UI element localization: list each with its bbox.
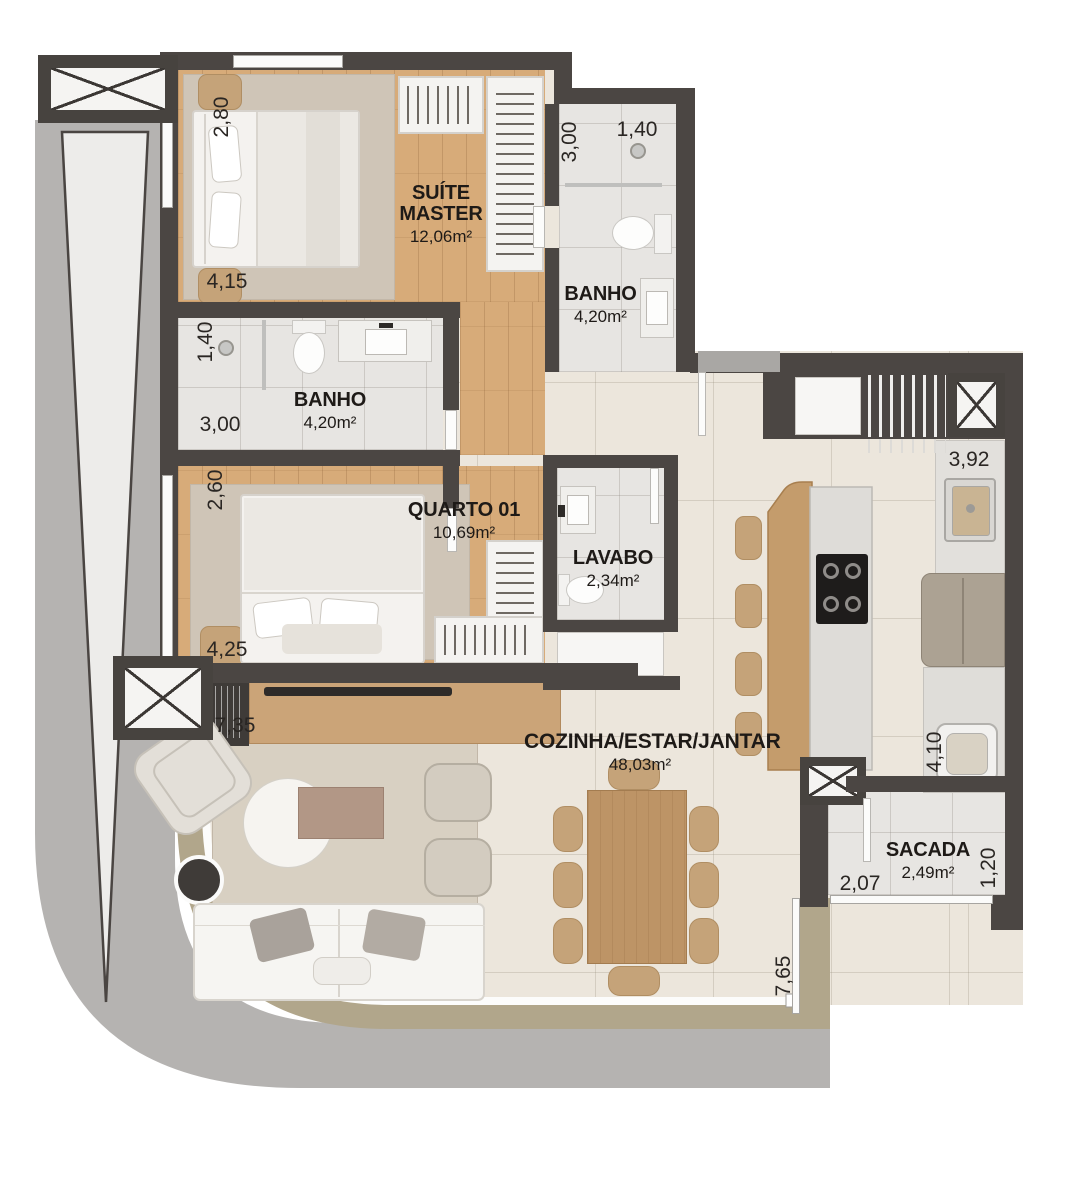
wall bbox=[664, 455, 678, 632]
dim-sacada-v: 1,20 bbox=[977, 845, 1001, 891]
wall bbox=[554, 88, 695, 104]
toilet bbox=[612, 216, 654, 250]
wall bbox=[991, 895, 1023, 930]
dark-side-table bbox=[174, 855, 224, 905]
bar-stool bbox=[735, 652, 762, 696]
louver-vent-icon bbox=[868, 375, 946, 437]
faucet-icon bbox=[379, 323, 393, 328]
exterior-blank bbox=[694, 0, 1078, 351]
sacada-door-leaf bbox=[863, 798, 871, 862]
shaft-xbox bbox=[113, 656, 213, 740]
wall bbox=[160, 302, 460, 318]
dim-banho-social-h: 3,00 bbox=[196, 413, 244, 437]
marble-side-table bbox=[298, 787, 384, 839]
door-leaf bbox=[445, 410, 457, 450]
dim-kitchen-v: 4,10 bbox=[923, 729, 947, 775]
shaft-xbox bbox=[38, 55, 178, 123]
dim-suite-v: 2,80 bbox=[210, 95, 234, 139]
dining-chair bbox=[689, 862, 719, 908]
room-label-banho-social: BANHO 4,20m² bbox=[280, 390, 380, 432]
throw bbox=[306, 112, 340, 266]
shower-head-icon bbox=[218, 340, 234, 356]
dim-living-v: 7,65 bbox=[772, 952, 796, 1000]
room-label-sacada: SACADA 2,49m² bbox=[878, 840, 978, 882]
tv bbox=[264, 687, 452, 696]
shower-glass bbox=[262, 320, 266, 390]
hall-wood-floor bbox=[460, 302, 545, 455]
dining-chair bbox=[553, 862, 583, 908]
dining-chair bbox=[689, 806, 719, 852]
shower-head-icon bbox=[630, 143, 646, 159]
bar-stool bbox=[735, 584, 762, 628]
pillow bbox=[282, 624, 382, 654]
room-label-cozinha-estar-jantar: COZINHA/ESTAR/JANTAR 48,03m² bbox=[524, 731, 756, 774]
window bbox=[233, 55, 343, 68]
dim-living-w: 7,35 bbox=[210, 714, 260, 738]
shaft-xbox bbox=[948, 373, 1005, 437]
faucet-icon bbox=[966, 504, 975, 513]
wall bbox=[160, 52, 572, 70]
kitchen-sink bbox=[944, 478, 996, 542]
entry-door-leaf bbox=[698, 372, 706, 436]
wall bbox=[846, 776, 1023, 792]
sacada-window-sill bbox=[830, 895, 993, 904]
sofa bbox=[193, 903, 485, 1001]
dining-table bbox=[587, 790, 687, 964]
room-label-lavabo: LAVABO 2,34m² bbox=[568, 548, 658, 590]
dining-chair bbox=[689, 918, 719, 964]
sofa-pillow bbox=[249, 907, 316, 964]
wall bbox=[443, 318, 459, 410]
entry-landing bbox=[698, 351, 780, 372]
dim-sacada-w: 2,07 bbox=[836, 872, 884, 896]
bar-stool bbox=[735, 516, 762, 560]
cooktop bbox=[816, 554, 868, 624]
closet-hangers bbox=[486, 540, 544, 622]
dim-quarto-h: 4,25 bbox=[203, 638, 251, 662]
door-leaf bbox=[533, 206, 545, 248]
bed-quarto bbox=[240, 494, 425, 664]
wall bbox=[543, 620, 678, 632]
room-label-suite-master: SUÍTE MASTER 12,06m² bbox=[382, 183, 500, 246]
wall bbox=[800, 805, 828, 907]
dim-suite-h: 4,15 bbox=[203, 270, 251, 294]
deck-side bbox=[800, 898, 830, 1024]
armchair bbox=[424, 763, 492, 822]
wall bbox=[545, 104, 559, 206]
wall bbox=[160, 450, 460, 466]
dim-banho-social-v: 1,40 bbox=[194, 320, 218, 364]
louver-drips bbox=[868, 439, 946, 453]
dim-kitchen-w: 3,92 bbox=[944, 448, 994, 472]
bathroom-vanity bbox=[338, 320, 432, 362]
wall bbox=[543, 455, 557, 632]
closet-hangers bbox=[398, 76, 484, 134]
window bbox=[162, 475, 173, 660]
wall bbox=[1005, 353, 1023, 913]
toilet-tank bbox=[654, 214, 672, 254]
exterior-blank bbox=[572, 0, 696, 88]
wall bbox=[543, 455, 678, 468]
dining-chair bbox=[553, 806, 583, 852]
floor-plan: SUÍTE MASTER 12,06m² BANHO 4,20m² BANHO … bbox=[0, 0, 1078, 1200]
sofa-pillow bbox=[362, 908, 427, 961]
room-label-banho-suite: BANHO 4,20m² bbox=[553, 284, 648, 326]
toilet bbox=[293, 332, 325, 374]
wall bbox=[543, 676, 680, 690]
dim-quarto-v: 2,60 bbox=[204, 468, 228, 512]
wall bbox=[676, 88, 695, 372]
blanket bbox=[244, 498, 421, 590]
dim-banho-suite-v: 3,00 bbox=[558, 120, 582, 164]
lavabo-vanity bbox=[560, 486, 596, 534]
dining-chair bbox=[608, 966, 660, 996]
shower-glass bbox=[565, 183, 662, 187]
kitchen-cabinet bbox=[795, 377, 861, 435]
pillow bbox=[208, 191, 242, 249]
sofa-cushion bbox=[313, 957, 371, 985]
room-label-quarto-01: QUARTO 01 10,69m² bbox=[405, 500, 523, 542]
dining-chair bbox=[553, 918, 583, 964]
closet-hangers bbox=[434, 616, 544, 664]
dim-banho-suite-h: 1,40 bbox=[613, 118, 661, 142]
fridge bbox=[921, 573, 1005, 667]
door-leaf bbox=[650, 468, 659, 524]
armchair bbox=[424, 838, 492, 897]
faucet-icon bbox=[558, 505, 565, 517]
